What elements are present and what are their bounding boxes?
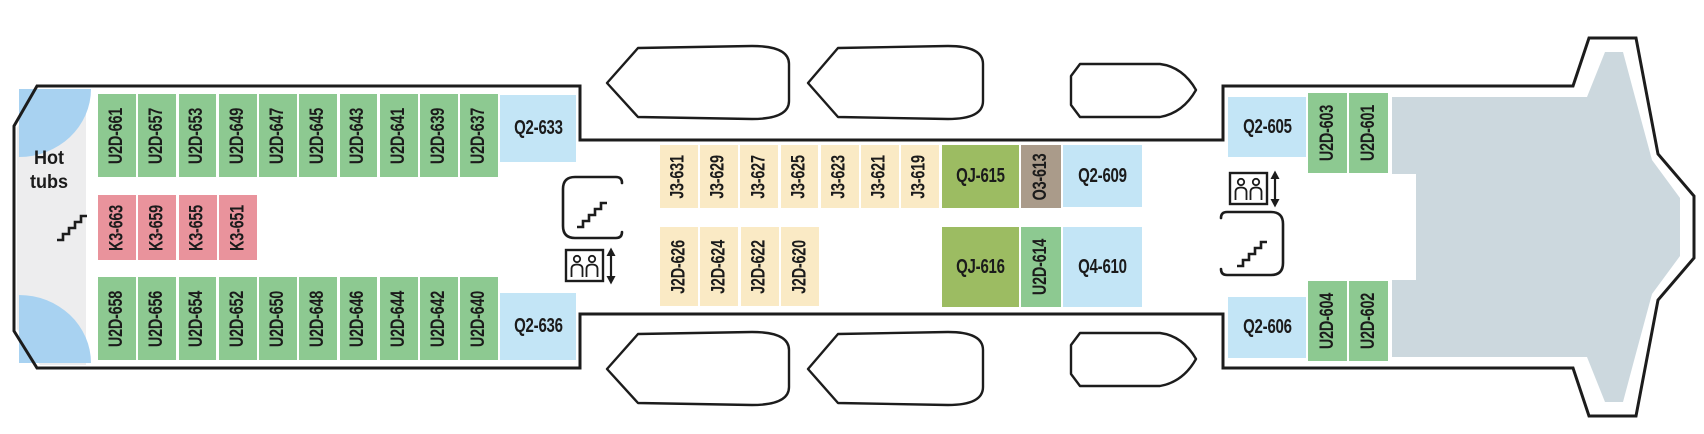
cabin-label: U2D-652 (227, 290, 249, 346)
stairwell-outline (563, 177, 622, 238)
cabin-row-starboard-aft: U2D-658 U2D-656 U2D-654 U2D-652 U2D-650 … (98, 277, 498, 360)
cabin[interactable]: U2D-661 (98, 94, 136, 177)
elevator-icon (1230, 171, 1280, 208)
cabin[interactable]: U2D-645 (299, 94, 337, 177)
cabin[interactable]: K3-663 (98, 195, 136, 260)
cabin-label: U2D-644 (388, 290, 410, 346)
cabin[interactable]: J3-625 (781, 145, 819, 208)
cabin-label: J2D-620 (789, 240, 811, 294)
cabin-label: J2D-626 (668, 240, 690, 294)
tender-boat-icon (1071, 64, 1196, 117)
stairs-icon (577, 203, 607, 227)
cabin-label: U2D-601 (1358, 105, 1380, 161)
cabin[interactable]: U2D-647 (259, 94, 297, 177)
cabin-label: U2D-642 (428, 290, 450, 346)
cabin-label: J3-629 (708, 155, 730, 199)
cabin[interactable]: J2D-622 (741, 227, 779, 306)
cabin[interactable]: U2D-650 (259, 277, 297, 360)
cabin-qj-615[interactable]: QJ-615 (942, 145, 1019, 208)
cabin-label: O3-613 (1030, 153, 1052, 200)
cabin-label: U2D-647 (267, 107, 289, 163)
cabin-label: U2D-614 (1030, 239, 1052, 295)
cabin-q2-605[interactable]: Q2-605 (1228, 97, 1306, 157)
cabin[interactable]: U2D-644 (380, 277, 418, 360)
cabin-label: U2D-602 (1358, 293, 1380, 349)
cabin[interactable]: J2D-620 (781, 227, 819, 306)
cabin-label: J3-621 (869, 155, 891, 199)
cabin-label: K3-651 (227, 204, 249, 250)
cabin-label: U2D-648 (307, 290, 329, 346)
stairs-icon (1237, 242, 1267, 266)
cabin[interactable]: U2D-653 (179, 94, 217, 177)
cabin-label: U2D-641 (388, 107, 410, 163)
cabin-q2-633[interactable]: Q2-633 (500, 95, 576, 162)
cabin[interactable]: U2D-652 (219, 277, 257, 360)
bow-deck-area (1392, 52, 1680, 402)
cabin[interactable]: U2D-656 (138, 277, 176, 360)
cabin[interactable]: U2D-658 (98, 277, 136, 360)
cabin-label: J3-631 (668, 155, 690, 199)
lifeboat-icon (808, 46, 983, 119)
cabin-u2d-614[interactable]: U2D-614 (1021, 227, 1061, 307)
cabin[interactable]: J3-623 (821, 145, 859, 208)
cabin-row-k3: K3-663 K3-659 K3-655 K3-651 (98, 195, 257, 260)
cabin-label: K3-659 (146, 204, 168, 250)
cabin-label: J3-625 (789, 155, 811, 199)
cabin[interactable]: J3-631 (660, 145, 698, 208)
cabin-label: K3-663 (106, 204, 128, 250)
cabin-label: U2D-604 (1317, 293, 1339, 349)
cabin[interactable]: J2D-626 (660, 227, 698, 306)
cabin-q2-636[interactable]: Q2-636 (500, 293, 576, 360)
cabin-label: U2D-603 (1317, 105, 1339, 161)
cabin[interactable]: J2D-624 (700, 227, 738, 306)
cabin-q2-609[interactable]: Q2-609 (1063, 145, 1142, 207)
cabin-u2d-602[interactable]: U2D-602 (1349, 281, 1388, 361)
cabin-label: U2D-649 (227, 107, 249, 163)
cabin-u2d-603[interactable]: U2D-603 (1308, 93, 1347, 173)
cabin[interactable]: J3-621 (861, 145, 899, 208)
cabin-row-mid-starboard: J2D-626 J2D-624 J2D-622 J2D-620 (660, 227, 819, 306)
cabin-row-port-aft: U2D-661 U2D-657 U2D-653 U2D-649 U2D-647 … (98, 94, 498, 177)
cabin[interactable]: U2D-643 (340, 94, 378, 177)
stairwell-outline (1221, 212, 1283, 275)
cabin-q4-610[interactable]: Q4-610 (1063, 227, 1142, 307)
cabin-label: U2D-637 (468, 107, 490, 163)
cabin-label: J3-627 (748, 155, 770, 199)
tender-boat-icon (1071, 333, 1196, 386)
cabin-label: J2D-622 (749, 240, 771, 294)
cabin-label: U2D-653 (186, 107, 208, 163)
cabin-label: U2D-650 (267, 290, 289, 346)
cabin[interactable]: U2D-648 (299, 277, 337, 360)
cabin[interactable]: J3-629 (700, 145, 738, 208)
cabin[interactable]: J3-627 (740, 145, 778, 208)
cabin[interactable]: K3-655 (179, 195, 217, 260)
cabin-label: Q2-605 (1243, 116, 1292, 139)
cabin-label: U2D-645 (307, 107, 329, 163)
cabin[interactable]: U2D-639 (420, 94, 458, 177)
cabin-label: J3-623 (829, 155, 851, 199)
cabin-qj-616[interactable]: QJ-616 (942, 227, 1019, 307)
cabin[interactable]: U2D-646 (340, 277, 378, 360)
cabin-label: Q2-633 (514, 117, 563, 140)
lifeboat-icon (607, 332, 789, 405)
cabin[interactable]: U2D-657 (138, 94, 176, 177)
cabin-label: U2D-656 (146, 290, 168, 346)
cabin-label: U2D-643 (347, 107, 369, 163)
cabin-q2-606[interactable]: Q2-606 (1228, 297, 1306, 358)
lifeboat-icon (607, 46, 789, 119)
cabin-label: U2D-658 (106, 290, 128, 346)
cabin-label: U2D-654 (186, 290, 208, 346)
cabin[interactable]: U2D-637 (460, 94, 498, 177)
cabin-label: QJ-616 (956, 256, 1005, 279)
cabin-label: U2D-646 (347, 290, 369, 346)
cabin-label: Q4-610 (1078, 256, 1127, 279)
cabin[interactable]: U2D-640 (460, 277, 498, 360)
cabin[interactable]: U2D-649 (219, 94, 257, 177)
cabin-label: J2D-624 (708, 240, 730, 294)
cabin[interactable]: K3-651 (219, 195, 257, 260)
cabin-u2d-604[interactable]: U2D-604 (1308, 281, 1347, 361)
cabin-label: K3-655 (187, 204, 209, 250)
lifeboat-icon (808, 332, 983, 405)
cabin-label: U2D-640 (468, 290, 490, 346)
cabin-label: Q2-609 (1078, 165, 1127, 188)
cabin-u2d-601[interactable]: U2D-601 (1349, 93, 1388, 173)
cabin-label: U2D-639 (428, 107, 450, 163)
cabin[interactable]: U2D-641 (380, 94, 418, 177)
cabin-label: QJ-615 (956, 165, 1005, 188)
cabin-label: U2D-661 (106, 107, 128, 163)
cabin-label: Q2-636 (514, 315, 563, 338)
cabin-label: Q2-606 (1243, 316, 1292, 339)
cabin[interactable]: J3-619 (901, 145, 939, 208)
hot-tubs-label: Hot tubs (16, 147, 83, 195)
cabin-label: J3-619 (909, 155, 931, 199)
cabin[interactable]: K3-659 (138, 195, 176, 260)
cabin-o3-613[interactable]: O3-613 (1021, 145, 1061, 208)
cabin-label: U2D-657 (146, 107, 168, 163)
cabin[interactable]: U2D-642 (420, 277, 458, 360)
cabin-row-mid-port: J3-631 J3-629 J3-627 J3-625 J3-623 J3-62… (660, 145, 939, 208)
deck-plan: Hot tubs U2D-661 U2D-657 U2D-653 U2D-649… (0, 0, 1704, 434)
cabin[interactable]: U2D-654 (179, 277, 217, 360)
elevator-icon (566, 248, 616, 285)
